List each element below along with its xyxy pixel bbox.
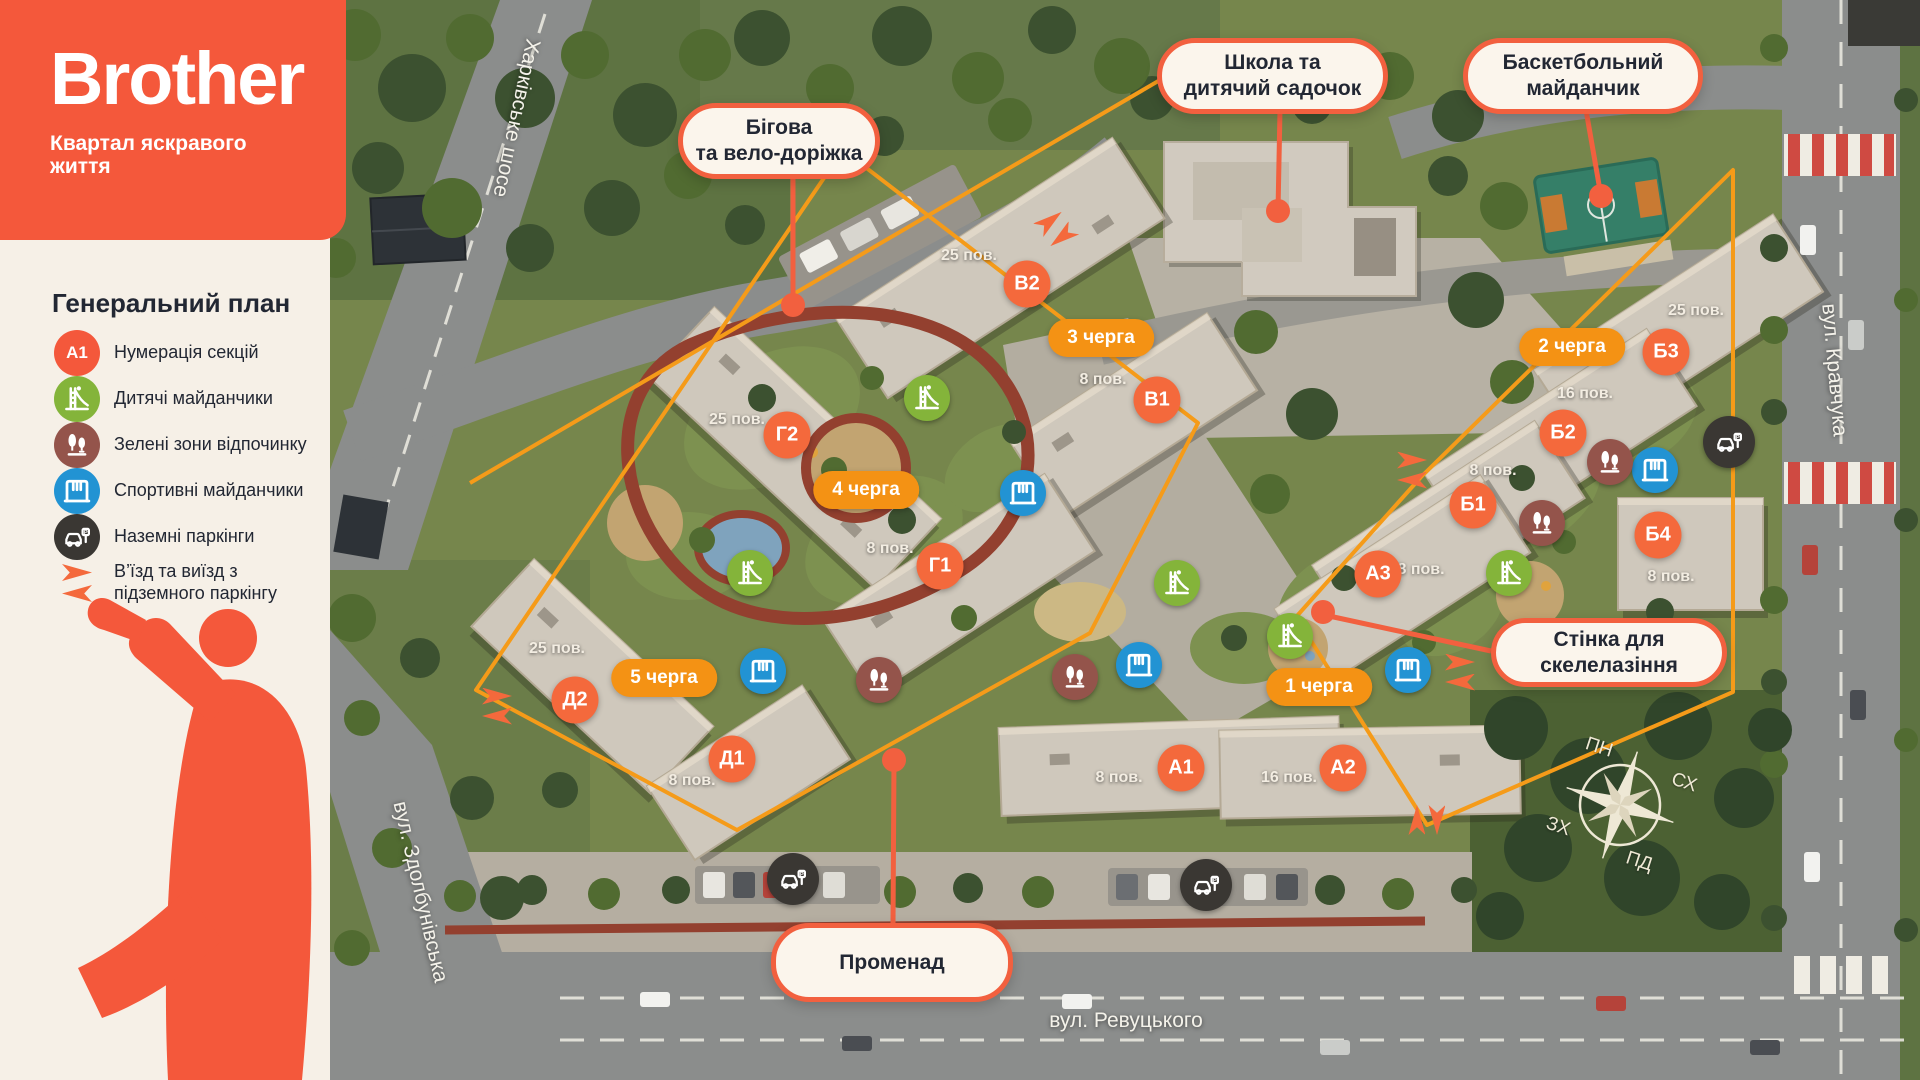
callout-basketball: Баскетбольний майданчик — [1463, 38, 1703, 114]
legend-item-label: Наземні паркінги — [114, 526, 254, 548]
legend-item-label: Нумерація секцій — [114, 342, 259, 364]
legend-icon — [54, 422, 100, 468]
legend: А1 Нумерація секцій Дитячі майданчики — [54, 330, 307, 606]
masterplan-page: P — [0, 0, 1920, 1080]
brand-tagline: Квартал яскравого життя — [50, 132, 285, 178]
legend-item: Спортивні майданчики — [54, 468, 307, 514]
brand-logo: Brother — [50, 42, 346, 116]
legend-item-label: Зелені зони відпочинку — [114, 434, 307, 456]
legend-item: Зелені зони відпочинку — [54, 422, 307, 468]
legend-item-label: Спортивні майданчики — [114, 480, 303, 502]
legend-icon: А1 — [54, 330, 100, 376]
brand-figure-graphic — [50, 590, 345, 1080]
callout-promenade: Променад — [771, 923, 1013, 1002]
legend-item-label: Дитячі майданчики — [114, 388, 273, 410]
callout-school: Школа та дитячий садочок — [1157, 38, 1388, 114]
legend-item: Наземні паркінги — [54, 514, 307, 560]
legend-item: А1 Нумерація секцій — [54, 330, 307, 376]
brand-header: Brother Квартал яскравого життя — [0, 0, 346, 240]
legend-icon — [54, 514, 100, 560]
legend-icon — [54, 468, 100, 514]
legend-icon — [54, 376, 100, 422]
sidebar: Brother Квартал яскравого життя Генераль… — [0, 0, 330, 1080]
callout-climbing-wall: Стінка для скелелазіння — [1491, 618, 1727, 687]
callout-running-track: Бігова та вело-доріжка — [678, 103, 880, 179]
legend-title: Генеральний план — [52, 288, 290, 319]
legend-item: Дитячі майданчики — [54, 376, 307, 422]
